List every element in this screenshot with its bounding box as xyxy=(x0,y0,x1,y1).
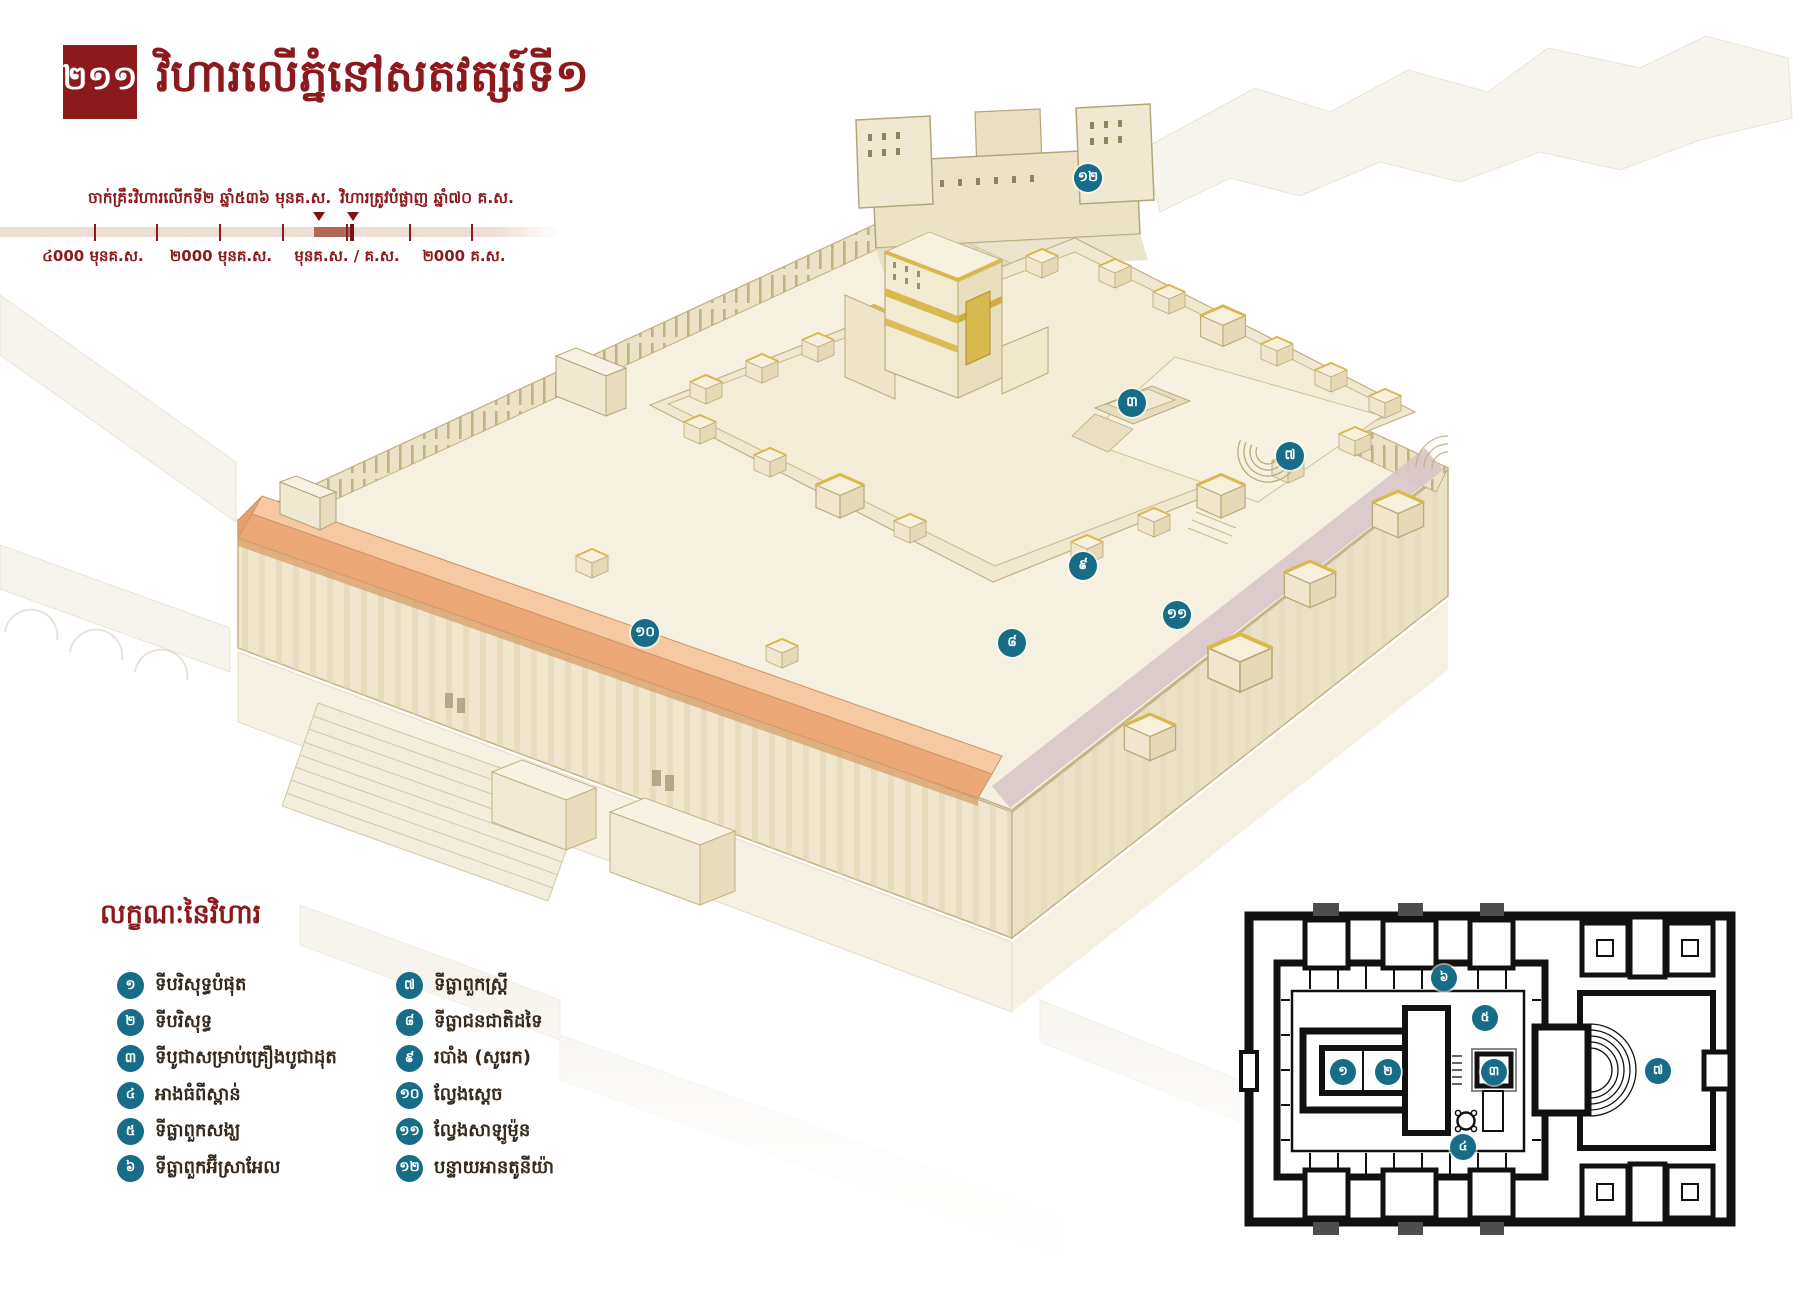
timeline-tick xyxy=(219,224,221,241)
timeline-axis-label: មុនគ.ស. / គ.ស. xyxy=(294,247,399,269)
timeline-bar xyxy=(0,227,560,237)
timeline-tick xyxy=(282,224,284,241)
plan-marker-court-women-7: ៧ xyxy=(1645,1058,1671,1084)
legend-item: ១១ ល្វែងសាឡូម៉ូន xyxy=(396,1118,554,1145)
map-marker-antonia-12: ១២ xyxy=(1074,164,1102,192)
legend-item-number: ៤ xyxy=(117,1082,144,1109)
timeline-event-label: វិហារត្រូវបំផ្លាញ ឆ្នាំ៧០ គ.ស. xyxy=(340,188,560,211)
timeline-tick xyxy=(471,224,473,241)
timeline-tick xyxy=(94,224,96,241)
book-page: ២១១ វិហារលើភ្នំនៅសតវត្សរ៍ទី១ ចាក់គ្រឹះវិ… xyxy=(0,0,1800,1300)
timeline-axis-label: ៤000 មុនគ.ស. xyxy=(42,247,143,269)
timeline: ចាក់គ្រឹះវិហារលើកទី២ ឆ្នាំ៥៣៦ មុនគ.ស. វិ… xyxy=(0,185,600,285)
legend-item: ១០ ល្វែងស្ដេច xyxy=(396,1082,554,1109)
plan-marker-israel-6: ៦ xyxy=(1431,965,1457,991)
legend-item-number: ៨ xyxy=(396,1009,423,1036)
map-marker-court-women-7: ៧ xyxy=(1276,442,1304,470)
timeline-event-arrow-icon xyxy=(313,212,325,221)
map-marker-soreg-9: ៩ xyxy=(1069,552,1097,580)
legend-item-number: ១១ xyxy=(396,1118,423,1145)
map-marker-solomon-11: ១១ xyxy=(1163,601,1191,629)
plan-marker-basin-4: ៤ xyxy=(1450,1134,1476,1160)
legend-item: ៨ ទីធ្លាជនជាតិដទៃ xyxy=(396,1009,554,1036)
legend-item-label: បន្ទាយអានតូនីយ៉ា xyxy=(434,1155,554,1182)
legend-item-number: ១២ xyxy=(396,1155,423,1182)
timeline-axis-label: ២000 មុនគ.ស. xyxy=(170,247,272,269)
legend-item: ២ ទីបរិសុទ្ធ xyxy=(117,1009,337,1036)
legend-item: ៤ អាងធំពីស្ពាន់ xyxy=(117,1082,337,1109)
legend-item: ៧ ទីធ្លាពួកស្ត្រី xyxy=(396,972,554,999)
legend-item-label: ទីធ្លាពួកស្ត្រី xyxy=(434,972,508,999)
legend-item: ៣ ទីបូជាសម្រាប់គ្រឿងបូជាដុត xyxy=(117,1045,337,1072)
timeline-tick xyxy=(409,224,411,241)
timeline-axis-label: ២000 គ.ស. xyxy=(422,247,505,269)
legend-item-label: ទីធ្លាពួកអ៊ីស្រាអែល xyxy=(155,1155,280,1182)
plan-laver-icon xyxy=(1455,1110,1476,1131)
legend-item-label: ល្វែងស្ដេច xyxy=(434,1082,503,1109)
legend-heading: លក្ខណៈនៃវិហារ xyxy=(100,898,261,937)
legend-item-number: ៦ xyxy=(117,1155,144,1182)
legend-item-label: ល្វែងសាឡូម៉ូន xyxy=(434,1118,530,1145)
legend-item-label: របាំង (សូរេក) xyxy=(434,1045,531,1072)
legend-item-number: ៥ xyxy=(117,1118,144,1145)
plan-marker-holiest-1: ១ xyxy=(1330,1059,1356,1085)
page-title: វិហារលើភ្នំនៅសតវត្សរ៍ទី១ xyxy=(156,34,589,126)
legend-item: ១ ទីបរិសុទ្ធបំផុត xyxy=(117,972,337,999)
legend-item: ៥ ទីធ្លាពួកសង្ឃ xyxy=(117,1118,337,1145)
legend-item-label: ទីធ្លាជនជាតិដទៃ xyxy=(434,1009,543,1036)
page-number-badge: ២១១ xyxy=(63,45,137,119)
legend-item-number: ១ xyxy=(117,972,144,999)
legend-item-number: ៧ xyxy=(396,972,423,999)
map-marker-royal-stoa-10: ១០ xyxy=(631,619,659,647)
legend-column: ៧ ទីធ្លាពួកស្ត្រី ៨ ទីធ្លាជនជាតិដទៃ ៩ រប… xyxy=(396,972,554,1191)
legend-item-label: អាងធំពីស្ពាន់ xyxy=(155,1082,241,1109)
map-marker-altar-3: ៣ xyxy=(1118,389,1146,417)
plan-nicanor-gate xyxy=(1535,1027,1588,1113)
legend-item: ៩ របាំង (សូរេក) xyxy=(396,1045,554,1072)
legend-item-number: ៩ xyxy=(396,1045,423,1072)
legend-item-label: ទីបូជាសម្រាប់គ្រឿងបូជាដុត xyxy=(155,1045,337,1072)
plan-marker-priests-5: ៥ xyxy=(1472,1005,1498,1031)
legend-item-label: ទីធ្លាពួកសង្ឃ xyxy=(155,1118,240,1145)
legend-item-number: ២ xyxy=(117,1009,144,1036)
legend-item-label: ទីបរិសុទ្ធបំផុត xyxy=(155,972,246,999)
legend-item-label: ទីបរិសុទ្ធ xyxy=(155,1009,212,1036)
plan-marker-altar-3: ៣ xyxy=(1481,1059,1507,1085)
timeline-event-arrow-icon xyxy=(347,212,359,221)
legend-item: ៦ ទីធ្លាពួកអ៊ីស្រាអែល xyxy=(117,1155,337,1182)
map-marker-gentiles-8: ៨ xyxy=(998,629,1026,657)
legend-item-number: ១០ xyxy=(396,1082,423,1109)
legend-item: ១២ បន្ទាយអានតូនីយ៉ា xyxy=(396,1155,554,1182)
legend-item-number: ៣ xyxy=(117,1045,144,1072)
golden-portal-icon xyxy=(966,291,990,365)
timeline-tick xyxy=(346,224,348,241)
timeline-end-mark xyxy=(350,224,354,241)
plan-marker-holy-2: ២ xyxy=(1375,1059,1401,1085)
timeline-tick xyxy=(156,224,158,241)
timeline-event-label: ចាក់គ្រឹះវិហារលើកទី២ ឆ្នាំ៥៣៦ មុនគ.ស. xyxy=(88,188,322,211)
legend-column: ១ ទីបរិសុទ្ធបំផុត ២ ទីបរិសុទ្ធ ៣ ទីបូជាស… xyxy=(117,972,337,1191)
